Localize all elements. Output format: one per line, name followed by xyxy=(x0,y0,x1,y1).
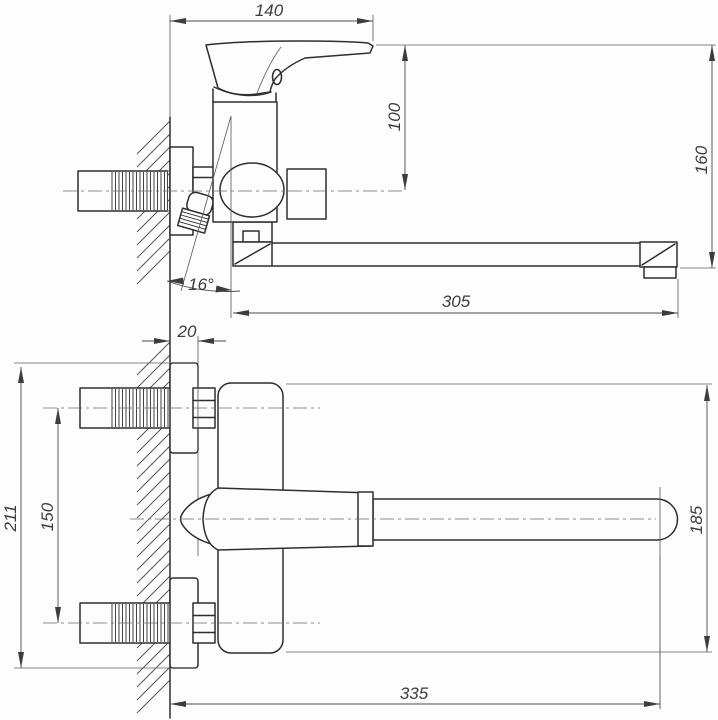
dim-100-label: 100 xyxy=(385,102,404,131)
hatch-line xyxy=(137,511,170,544)
lever-handle-side xyxy=(206,41,373,102)
hatch-line xyxy=(137,121,170,154)
hatch-line xyxy=(137,680,170,713)
dim-angle-16: 16° xyxy=(167,275,240,294)
hatch-line xyxy=(137,498,170,531)
dim-150-label: 150 xyxy=(38,502,57,531)
technical-drawing-page: 140 100 160 305 16° xyxy=(0,0,718,720)
faucet-drawing-svg: 140 100 160 305 16° xyxy=(0,0,718,720)
hatch-line xyxy=(137,641,170,674)
spout-tube-plan xyxy=(373,499,677,540)
dim-20-label: 20 xyxy=(177,322,197,341)
dim-160: 160 xyxy=(692,45,715,268)
dim-335-label: 335 xyxy=(400,684,429,703)
hatch-line xyxy=(137,563,170,596)
hatch-line xyxy=(137,355,170,388)
hatch-line xyxy=(137,225,170,258)
dim-150: 150 xyxy=(38,408,61,623)
dim-140-label: 140 xyxy=(255,1,284,20)
hatch-line xyxy=(137,459,170,492)
hatch-line xyxy=(137,485,170,518)
hatch-line xyxy=(137,342,170,375)
dim-211: 211 xyxy=(1,367,24,668)
hatch-line xyxy=(137,238,170,271)
dim-305-label: 305 xyxy=(442,292,471,311)
dim-20: 20 xyxy=(142,322,226,344)
cartridge-cover xyxy=(220,163,284,217)
hatch-line xyxy=(137,433,170,466)
spout-nozzle xyxy=(644,267,676,278)
hatch-line xyxy=(137,212,170,245)
plan-view xyxy=(43,336,677,709)
dim-305: 305 xyxy=(233,292,678,316)
diverter-knob xyxy=(287,169,326,219)
dim-140: 140 xyxy=(170,1,373,24)
hatch-line xyxy=(137,537,170,570)
hatch-line xyxy=(137,654,170,687)
hatch-line xyxy=(137,550,170,583)
spout-tube-side xyxy=(272,242,677,278)
dim-185: 185 xyxy=(687,385,710,652)
hatch-line xyxy=(137,251,170,284)
hatch-line xyxy=(137,472,170,505)
dim-160-label: 160 xyxy=(692,145,711,174)
dim-211-label: 211 xyxy=(1,504,20,532)
hatch-line xyxy=(137,134,170,167)
dim-100: 100 xyxy=(385,45,408,190)
spout-mount xyxy=(233,222,272,266)
hatch-line xyxy=(137,667,170,700)
dim-angle-label: 16° xyxy=(188,275,214,294)
hatch-line xyxy=(137,446,170,479)
hatch-line xyxy=(137,524,170,557)
dim-185-label: 185 xyxy=(687,505,706,534)
dim-335: 335 xyxy=(170,684,660,707)
side-view xyxy=(63,41,677,278)
